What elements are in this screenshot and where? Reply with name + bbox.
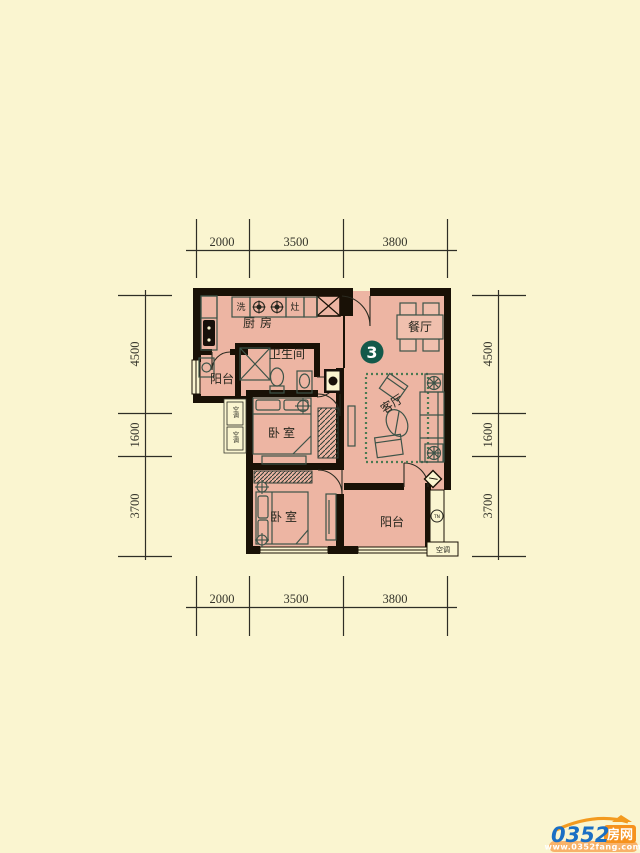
unit-badge: 3	[361, 341, 384, 364]
window-balcony-south	[358, 547, 430, 553]
dim-bottom-3: 3800	[383, 592, 408, 606]
dim-bottom-2: 3500	[284, 592, 309, 606]
floorplan-page: 2000 3500 3800 2000 3500 3800 4500 1600 …	[0, 0, 640, 853]
ac-platforms-left: 空调 空调	[224, 399, 246, 453]
dim-right-3: 3700	[481, 494, 495, 519]
label-balcony-left: 阳台	[210, 371, 234, 386]
counter-label-a: 洗	[236, 301, 245, 313]
floorplan-canvas: 2000 3500 3800 2000 3500 3800 4500 1600 …	[0, 0, 640, 853]
dim-left-2: 1600	[128, 423, 142, 448]
dim-left-1: 4500	[128, 342, 142, 367]
dim-bottom-1: 2000	[210, 592, 235, 606]
ac-unit-box: 空调	[427, 542, 458, 556]
dim-right-1: 4500	[481, 342, 495, 367]
meter-strip: TN	[430, 490, 444, 542]
label-balcony-south: 阳台	[380, 514, 404, 529]
dimension-band-left	[118, 290, 172, 560]
label-kitchen: 厨房	[243, 315, 277, 330]
dim-top-1: 2000	[210, 235, 235, 249]
wardrobe	[318, 408, 338, 458]
closet	[254, 471, 312, 483]
window-bedroom2-south	[260, 547, 328, 553]
label-dining: 餐厅	[408, 319, 432, 334]
duct-shaft	[317, 296, 340, 316]
brand-name: 房网	[607, 827, 633, 843]
ac-platform-label-2: 空调	[232, 430, 239, 444]
counter-label-b: 灶	[290, 301, 299, 313]
meter-label: TN	[433, 514, 440, 520]
watermark-logo: 0352 房网 www.0352fang.com	[545, 815, 640, 852]
label-bedroom2: 卧室	[270, 509, 300, 524]
dim-right-2: 1600	[481, 423, 495, 448]
label-bathroom: 卫生间	[269, 347, 305, 361]
dimension-band-bottom	[186, 576, 457, 636]
kitchen-sink	[203, 320, 215, 346]
dim-left-3: 3700	[128, 494, 142, 519]
label-bedroom1: 卧室	[268, 425, 298, 440]
brand-url: www.0352fang.com	[545, 843, 640, 852]
unit-badge-number: 3	[366, 343, 377, 362]
ac-platform-label-1: 空调	[232, 405, 239, 419]
dim-top-2: 3500	[284, 235, 309, 249]
ac-unit-label: 空调	[436, 545, 450, 554]
dim-top-3: 3800	[383, 235, 408, 249]
